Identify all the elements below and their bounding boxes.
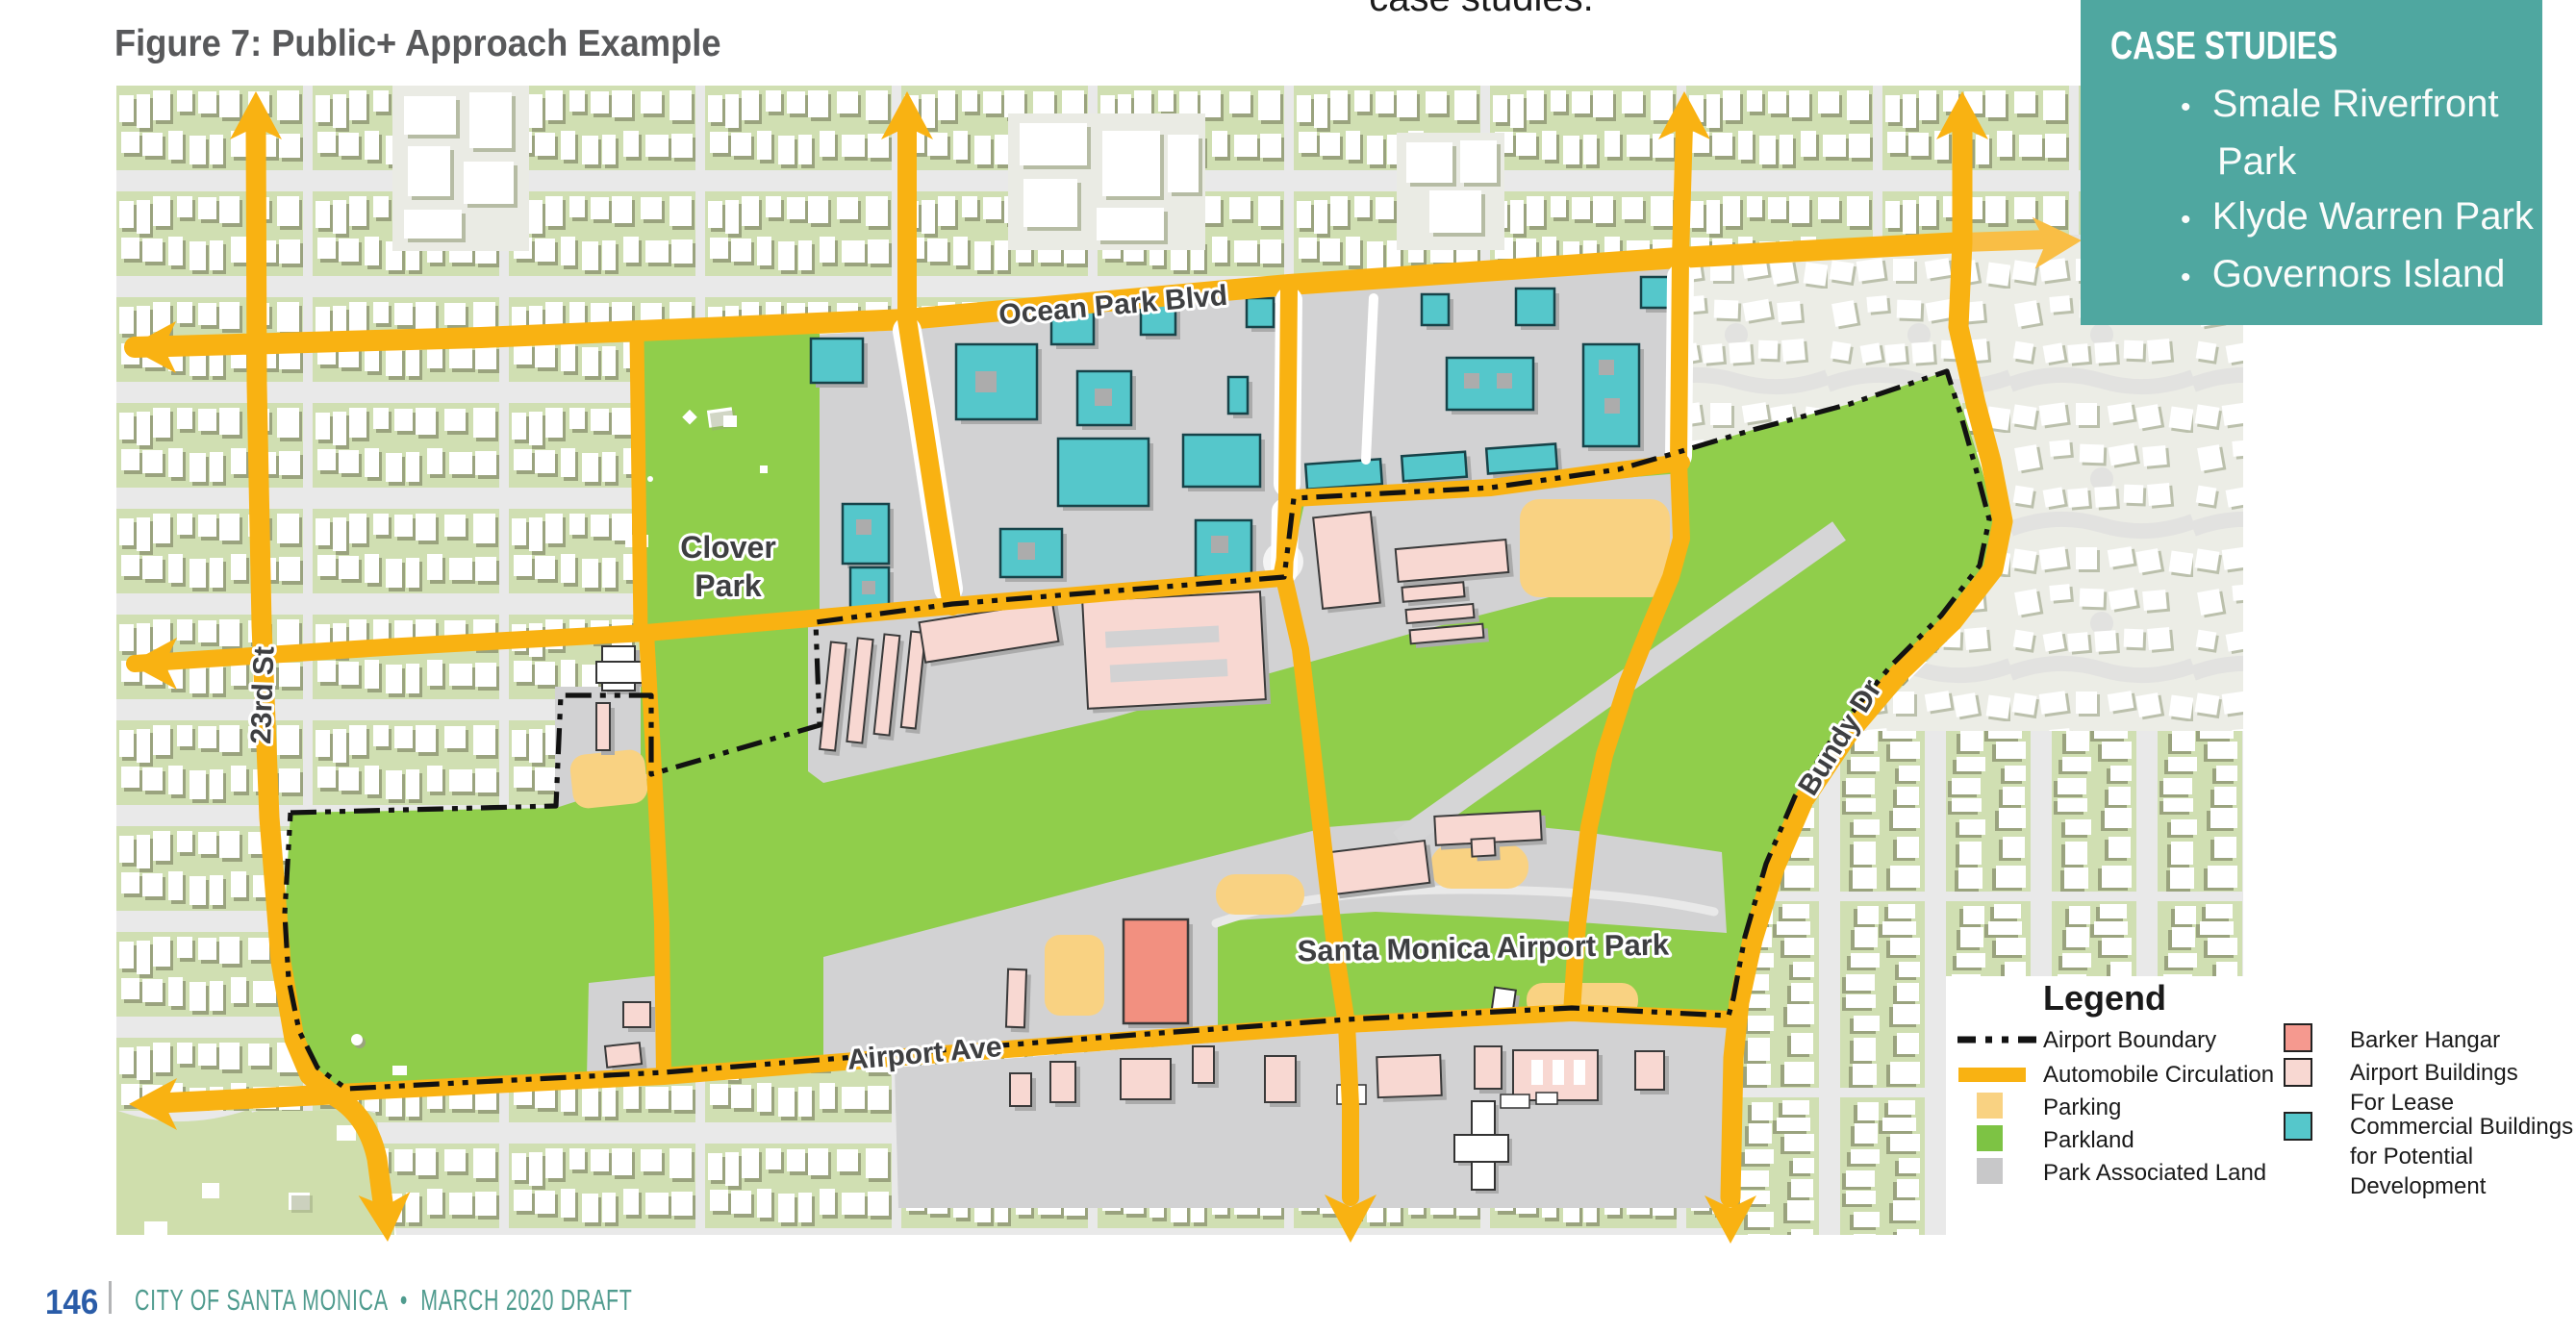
svg-text:23rd St: 23rd St (245, 645, 281, 744)
svg-text:Santa Monica Airport Park: Santa Monica Airport Park (1297, 928, 1670, 968)
svg-text:Clover: Clover (680, 530, 776, 565)
svg-text:Park: Park (695, 568, 762, 603)
